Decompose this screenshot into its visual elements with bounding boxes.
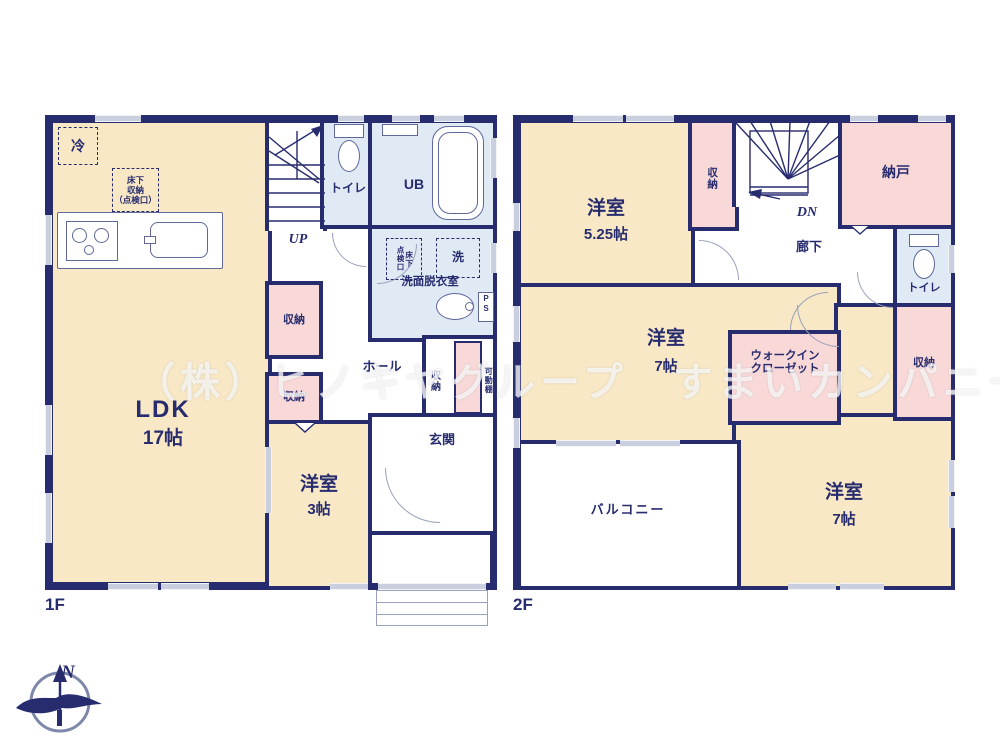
window	[490, 243, 497, 273]
window	[45, 405, 52, 455]
washer-label: 洗	[452, 251, 464, 265]
youshitsu3-name: 洋室	[282, 474, 356, 496]
toilet2-tank	[909, 234, 939, 247]
window	[338, 115, 364, 122]
compass-north-label: N	[60, 662, 76, 683]
toilet1-label: トイレ	[326, 182, 370, 196]
movable-shelf-label: 可動棚	[484, 352, 493, 408]
window	[948, 245, 955, 273]
storage-top-label: 収納	[706, 148, 718, 208]
stove-burner	[72, 228, 87, 243]
bath-counter	[382, 124, 418, 136]
storage1-label: 収納	[270, 314, 318, 327]
window	[948, 460, 955, 492]
window	[788, 583, 836, 590]
ldk-size: 17帖	[106, 428, 220, 450]
kitchen-sink	[150, 222, 208, 258]
sink-faucet	[144, 236, 156, 244]
window	[45, 215, 52, 265]
ub-label: UB	[392, 176, 436, 192]
youshitsu7b-size: 7帖	[798, 511, 890, 528]
floor-hatch-box: 点検口 床下	[386, 238, 422, 280]
floor2-label: 2F	[513, 595, 553, 615]
entrance-opening	[378, 583, 486, 590]
window	[161, 583, 209, 590]
youshitsu7a-name: 洋室	[606, 328, 726, 350]
window	[840, 583, 884, 590]
window	[948, 496, 955, 528]
fridge-space: 冷	[58, 127, 98, 165]
dn-label: DN	[784, 205, 830, 221]
window	[513, 418, 520, 448]
youshitsu7b-name: 洋室	[798, 482, 890, 504]
window	[513, 203, 520, 231]
hallway-label: 廊下	[778, 240, 840, 255]
balcony-sliding-door	[620, 440, 680, 447]
window	[626, 115, 674, 122]
genkan-label: 玄関	[412, 433, 472, 448]
youshitsu525-name: 洋室	[530, 198, 682, 220]
sliding-door	[265, 447, 272, 513]
youshitsu525-size: 5.25帖	[530, 226, 682, 243]
toilet2-label: トイレ	[896, 282, 952, 295]
stairs-2f-treads	[736, 121, 840, 205]
window	[95, 115, 141, 122]
compass: N	[12, 652, 107, 744]
bathtub-inner	[438, 132, 478, 214]
underfloor-storage-label: 床下 収納 （点検口）	[114, 175, 157, 206]
pipe-space-label: P S	[478, 294, 494, 315]
stairs-up-arrow	[311, 125, 323, 137]
toilet-tank	[334, 124, 364, 138]
balcony-label: バルコニー	[566, 503, 690, 518]
window	[490, 138, 497, 178]
underfloor-label: 床下	[404, 251, 413, 268]
window	[45, 493, 52, 543]
window	[918, 115, 946, 122]
window	[330, 583, 368, 590]
nando-door-mark	[850, 226, 870, 235]
window	[850, 115, 878, 122]
basin-faucet	[465, 302, 474, 311]
window	[573, 115, 623, 122]
toilet2-bowl	[913, 249, 935, 279]
toilet-bowl	[338, 140, 360, 172]
up-label: UP	[276, 232, 320, 248]
nando-label: 納戸	[860, 164, 932, 180]
window	[513, 306, 520, 342]
washer-space: 洗	[436, 238, 480, 278]
stove-burner	[94, 228, 109, 243]
entrance-porch	[376, 590, 488, 626]
stairs-1f-treads	[269, 121, 325, 229]
stove-burner	[84, 245, 94, 255]
floor1-label: 1F	[45, 595, 85, 615]
underfloor-storage-box: 床下 収納 （点検口）	[112, 168, 159, 212]
window	[434, 115, 464, 122]
inspection-label: 点検口	[395, 246, 404, 272]
compass-bird-tail	[57, 710, 62, 726]
balcony-sliding-door	[556, 440, 616, 447]
fridge-label: 冷	[71, 138, 85, 154]
window	[392, 115, 420, 122]
watermark: （株）ヒノキヤグループ すまいカンパニー 上尾店	[135, 350, 1000, 408]
window	[108, 583, 158, 590]
folding-door-mark	[294, 423, 316, 433]
washroom-label: 洗面脱衣室	[376, 276, 484, 289]
youshitsu3-size: 3帖	[282, 501, 356, 518]
floor-plan-page: { "watermark": "（株）ヒノキヤグループ すまいカンパニー 上尾店…	[0, 0, 1000, 750]
